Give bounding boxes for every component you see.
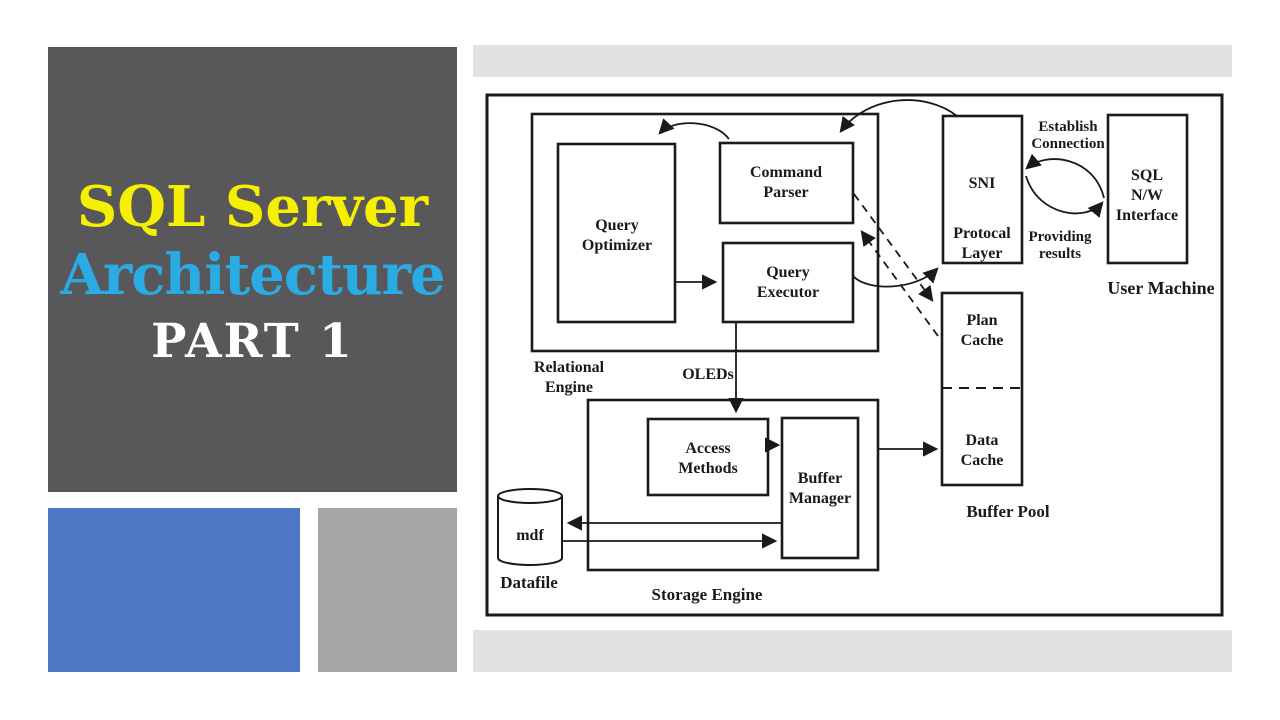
command-parser-box [720, 143, 853, 223]
sql-server-architecture-diagram: Query Optimizer Command Parser Query Exe… [480, 88, 1232, 625]
plan-cache-label: Plan [966, 312, 997, 329]
relational-engine-label: Relational [534, 359, 605, 376]
command-parser-label: Parser [763, 184, 808, 201]
mdf-label: mdf [516, 527, 544, 544]
access-methods-box [648, 419, 768, 495]
sql-nw-interface-label: SQL [1131, 167, 1163, 184]
title-line-part1: PART 1 [48, 315, 457, 369]
plan-cache-label: Cache [961, 332, 1004, 349]
query-executor-label: Query [766, 264, 810, 281]
access-methods-label: Access [685, 440, 730, 457]
establish-connection-label: Establish [1038, 119, 1098, 135]
slide: SQL Server Architecture PART 1 [0, 0, 1280, 720]
query-executor-box [723, 243, 853, 322]
decor-blue-square [48, 508, 300, 672]
providing-results-label: Providing [1028, 229, 1092, 245]
sni-label: Layer [962, 245, 1003, 262]
command-parser-label: Command [750, 164, 822, 181]
relational-engine-label: Engine [545, 379, 593, 396]
title-line-sql-server: SQL Server [48, 175, 457, 239]
arc-command-parser-to-query-optimizer [660, 123, 729, 139]
arc-providing-results [1026, 176, 1102, 213]
user-machine-label: User Machine [1107, 278, 1214, 298]
sql-nw-interface-label: N/W [1131, 187, 1163, 204]
title-line-architecture: Architecture [48, 243, 457, 307]
query-optimizer-label: Query [595, 217, 639, 234]
decor-bottom-bar [473, 630, 1232, 672]
data-cache-label: Cache [961, 452, 1004, 469]
datafile-cylinder-top [498, 489, 562, 503]
buffer-manager-label: Manager [789, 490, 851, 507]
buffer-manager-label: Buffer [798, 470, 842, 487]
decor-gray-square [318, 508, 457, 672]
dashed-arrow-plan-cache-to-command-parser [862, 232, 938, 336]
sni-label: Protocal [953, 225, 1011, 242]
buffer-pool-label: Buffer Pool [966, 502, 1050, 521]
data-cache-label: Data [966, 432, 999, 449]
datafile-label: Datafile [500, 573, 558, 592]
buffer-manager-box [782, 418, 858, 558]
providing-results-label: results [1039, 246, 1081, 262]
sni-label: SNI [969, 175, 996, 192]
storage-engine-label: Storage Engine [652, 585, 763, 604]
sql-nw-interface-label: Interface [1116, 207, 1178, 224]
arc-sni-to-command-parser [841, 100, 957, 131]
access-methods-label: Methods [678, 460, 738, 477]
query-optimizer-label: Optimizer [582, 237, 652, 254]
title-panel: SQL Server Architecture PART 1 [48, 47, 457, 492]
establish-connection-label: Connection [1031, 136, 1105, 152]
oleds-label: OLEDs [682, 366, 734, 383]
query-executor-label: Executor [757, 284, 819, 301]
decor-top-bar [473, 45, 1232, 77]
arc-establish-connection [1027, 159, 1104, 198]
